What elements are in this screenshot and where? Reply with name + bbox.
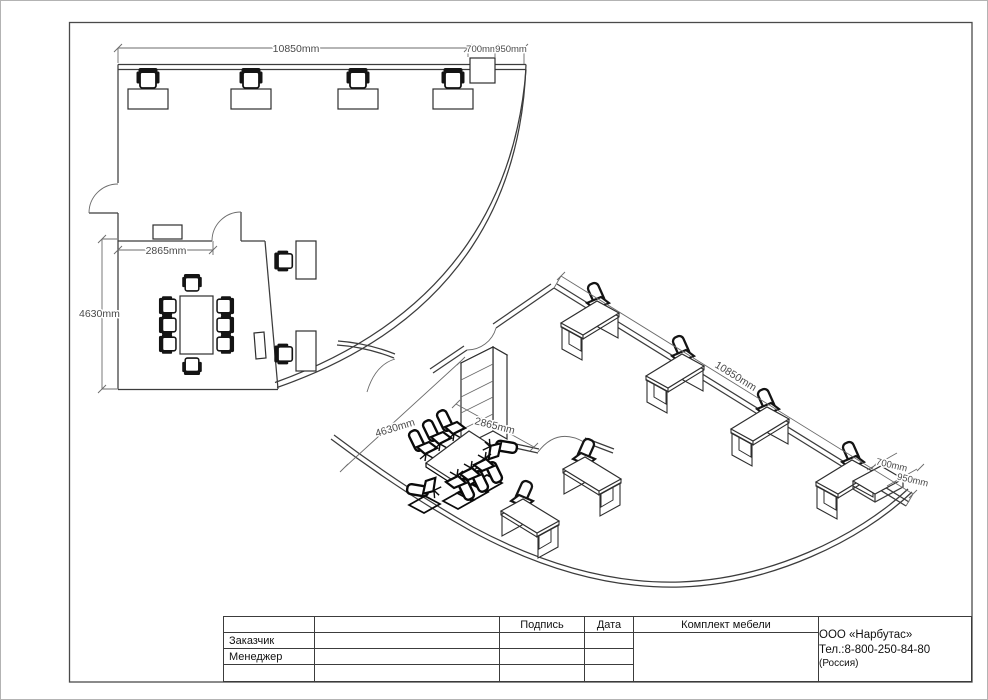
plan-desk-row (128, 68, 473, 109)
iso-door-arc (467, 328, 496, 350)
dim-plan-room-width: 2865mm (146, 245, 187, 257)
desk-with-chair (501, 480, 559, 558)
plan-conference-set (159, 274, 234, 375)
office-chair (159, 315, 176, 335)
office-chair (274, 251, 292, 272)
manager-value-cell (315, 649, 500, 665)
office-chair (217, 315, 234, 335)
project-title: Комплект мебели (634, 617, 819, 633)
drawing-canvas: 10850mm 700mm 950mm 2865mm 4630mm (1, 1, 988, 700)
company-info: ООО «Нарбутас» Тел.:8-800-250-84-80 (Рос… (819, 617, 971, 681)
desk-with-chair (561, 282, 619, 360)
signature-column-header: Подпись (500, 617, 585, 633)
iso-wall-straight (337, 284, 909, 506)
dim-iso-total-width: 10850mm (713, 359, 759, 394)
office-chair (159, 334, 176, 354)
customer-value-cell (315, 633, 500, 649)
office-chair (182, 274, 202, 291)
customer-label: Заказчик (224, 633, 315, 649)
conference-table (180, 296, 213, 354)
plan-cabinet-box (470, 58, 495, 83)
title-block-cell (500, 665, 585, 681)
customer-signature-cell (500, 633, 585, 649)
customer-date-cell (585, 633, 634, 649)
title-block-cell (224, 665, 315, 681)
iso-door-arc (538, 436, 584, 452)
plan-door-meeting (212, 212, 241, 241)
dim-plan-room-depth: 4630mm (79, 308, 120, 320)
title-block-cell (315, 665, 500, 681)
company-name: ООО «Нарбутас» (819, 628, 971, 643)
title-block-cell (315, 617, 500, 633)
plan-door-entry (89, 184, 118, 213)
drawing-sheet: 10850mm 700mm 950mm 2865mm 4630mm (0, 0, 988, 700)
desk-with-chair (563, 438, 621, 516)
iso-view: 10850mm 4630mm 2865mm 700mm 950mm (331, 272, 929, 587)
iso-side-desks (501, 438, 621, 558)
plan-side-desks (274, 241, 316, 371)
project-notes-cell (634, 633, 819, 681)
iso-door-arc (367, 359, 395, 392)
manager-label: Менеджер (224, 649, 315, 665)
desk (231, 89, 271, 109)
dim-plan-cabinet-depth: 700mm (466, 44, 498, 55)
title-block-cell (585, 665, 634, 681)
office-chair (442, 68, 465, 88)
office-chair (217, 296, 234, 316)
plan-wall-panel (254, 332, 266, 359)
plan-sideboard (153, 225, 182, 239)
desk (296, 241, 316, 279)
company-country: (Россия) (819, 657, 971, 670)
office-chair (159, 296, 176, 316)
desk (296, 331, 316, 371)
title-block: Подпись Дата Комплект мебели ООО «Нарбут… (223, 616, 972, 682)
office-chair (240, 68, 263, 88)
company-phone: Тел.:8-800-250-84-80 (819, 643, 971, 658)
desk (338, 89, 378, 109)
plan-view: 10850mm 700mm 950mm 2865mm 4630mm (79, 43, 528, 393)
title-block-cell (224, 617, 315, 633)
dim-plan-cabinet-width: 950mm (495, 44, 527, 55)
office-chair (217, 334, 234, 354)
office-chair (137, 68, 160, 88)
office-chair (274, 344, 292, 365)
desk (433, 89, 473, 109)
date-column-header: Дата (585, 617, 634, 633)
office-chair (347, 68, 370, 88)
desk (128, 89, 168, 109)
manager-signature-cell (500, 649, 585, 665)
office-chair (182, 358, 202, 375)
manager-date-cell (585, 649, 634, 665)
dim-plan-total-width: 10850mm (273, 43, 320, 55)
